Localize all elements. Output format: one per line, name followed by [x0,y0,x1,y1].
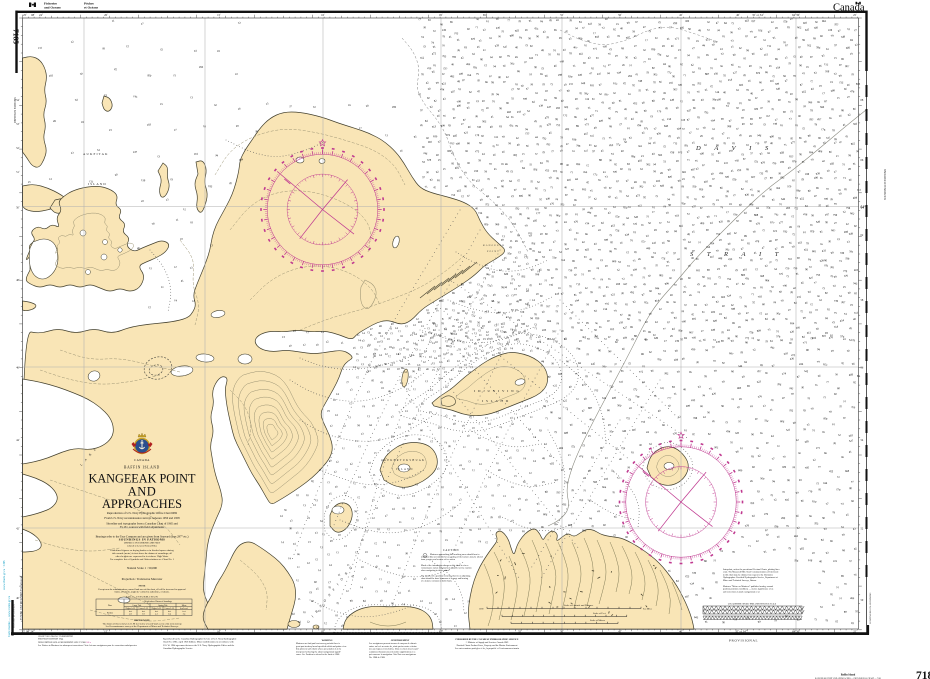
svg-text:309: 309 [754,108,759,111]
svg-text:659: 659 [582,432,587,435]
svg-text:190: 190 [474,170,479,173]
svg-text:545: 545 [634,216,639,219]
svg-text:Projection : Transverse Mercat: Projection : Transverse Mercator [122,577,163,581]
svg-text:788: 788 [693,417,698,420]
svg-text:Higher h.W.: Higher h.W. [126,607,136,610]
svg-text:Except near the administratio: Except near the administrations, named l… [98,588,186,591]
svg-text:10ʹ: 10ʹ [217,629,221,633]
svg-text:655: 655 [610,328,615,331]
svg-text:531: 531 [660,387,665,390]
svg-text:50ʹ: 50ʹ [618,13,622,17]
svg-text:489: 489 [565,128,570,131]
svg-text:362: 362 [582,336,587,339]
svg-text:53ʹ: 53ʹ [16,123,20,126]
svg-text:354: 354 [706,246,711,249]
svg-text:214: 214 [667,118,672,121]
svg-text:I D J U N I V I N G: I D J U N I V I N G [474,389,520,393]
svg-text:48ʹ: 48ʹ [16,279,20,282]
svg-text:25ʹ: 25ʹ [853,629,857,633]
svg-text:247: 247 [133,151,138,154]
svg-text:www.charts.gc.ca · CHS: www.charts.gc.ca · CHS [2,560,6,590]
svg-text:limits, of islands, might be v: limits, of islands, might be verified in… [115,591,170,594]
svg-text:TIDAL INFORMATION: TIDAL INFORMATION [126,595,158,598]
svg-text:Interpolate, unless the provis: Interpolate, unless the provisional Deci… [723,568,780,571]
svg-text:499: 499 [780,161,785,164]
svg-text:713: 713 [576,283,581,286]
svg-text:Spring Tide: Spring Tide [158,604,168,607]
svg-text:711: 711 [767,45,772,48]
svg-text:I S L A N D: I S L A N D [482,399,509,403]
svg-text:350: 350 [750,502,755,505]
svg-text:868: 868 [754,214,759,217]
svg-text:64°30ʹ: 64°30ʹ [792,13,800,17]
svg-text:865: 865 [822,20,827,23]
svg-text:64°30ʹ: 64°30ʹ [792,629,800,633]
svg-text:No. 1968 de 1968.: No. 1968 de 1968. [369,657,386,659]
svg-text:753: 753 [556,124,561,127]
svg-text:694: 694 [547,320,552,323]
svg-text:55ʹ: 55ʹ [560,13,564,17]
svg-text:NEW EDITION APR 4 1969 REPR: NEW EDITION APR 4 1969 REPRINT APR 27 19… [38,641,91,644]
svg-text:486: 486 [466,63,471,66]
svg-text:634: 634 [529,57,534,60]
svg-text:Mean: Mean [182,605,187,607]
svg-text:and corrections is made na: and corrections is made navigational or … [723,590,760,593]
svg-text:mind that this uncontrolled ar: mind that this uncontrolled area existin… [421,556,484,559]
svg-text:246: 246 [442,29,447,32]
svg-text:WARNING: WARNING [322,639,333,642]
svg-text:664: 664 [602,486,607,489]
svg-text:Much of the information shown: Much of the information shown on this ch… [421,564,469,567]
svg-text:772: 772 [745,337,750,340]
svg-text:769: 769 [579,499,584,502]
svg-text:648: 648 [581,82,586,85]
svg-text:APPROACHES: APPROACHES [102,497,182,511]
svg-text:280: 280 [781,517,786,520]
svg-text:312: 312 [585,98,590,101]
svg-text:25ʹ: 25ʹ [23,13,27,17]
svg-text:© Minister of Supply and Servi: © Minister of Supply and Services Canada… [466,641,508,644]
svg-text:cance. See Position is offere: cance. See Position is offered to the li… [296,653,340,656]
svg-text:584: 584 [820,106,825,109]
svg-text:50ʹ: 50ʹ [560,629,564,633]
svg-text:Height above Datum of Sounding: Height above Datum of Soundings [144,600,172,603]
svg-text:Mines and Technical Surveys, O: Mines and Technical Surveys, Ottawa. [723,580,757,582]
svg-text:447: 447 [547,106,552,109]
svg-text:ISLAND: ISLAND [88,182,107,186]
svg-text:875: 875 [553,170,558,173]
svg-text:K E K E R T U K S H U A K: K E K E R T U K S H U A K [384,459,424,462]
svg-text:of a feature common to both ch: of a feature common to both charts. [421,580,453,583]
svg-text:SOUNDINGS IN FATHOMS: SOUNDINGS IN FATHOMS [884,169,887,200]
svg-text:0.2: 0.2 [142,613,145,615]
svg-text:523: 523 [615,505,620,508]
svg-text:873: 873 [446,134,451,137]
svg-text:chart should be done by mea: chart should be done by means of a range… [421,577,469,580]
svg-text:299: 299 [673,22,678,25]
svg-text:752: 752 [716,233,721,236]
svg-text:223: 223 [542,329,547,332]
svg-text:position positions conditions: position positions conditions — metres s… [723,588,773,591]
svg-text:interpreted at having the: interpreted at having the about navigati… [296,650,341,653]
svg-text:K A N G E E A K: K A N G E E A K [483,244,504,247]
svg-text:545: 545 [781,198,786,201]
svg-text:44ʹ: 44ʹ [16,439,20,442]
svg-text:578: 578 [427,159,432,162]
svg-text:293: 293 [628,75,633,78]
svg-text:Lower L.W.: Lower L.W. [139,608,149,610]
svg-text:896: 896 [576,163,581,166]
svg-text:430: 430 [728,258,733,261]
svg-text:I S L A N D: I S L A N D [396,468,413,471]
svg-text:422: 422 [829,470,834,473]
svg-text:721: 721 [626,417,631,420]
svg-text:750: 750 [833,214,838,217]
svg-text:496: 496 [719,172,724,175]
svg-text:Baffin Island: Baffin Island [841,674,856,677]
svg-text:46ʹ: 46ʹ [16,367,20,370]
svg-text:745: 745 [477,126,482,129]
svg-text:284: 284 [199,66,204,69]
svg-text:55ʹ: 55ʹ [518,629,522,633]
svg-text:779: 779 [843,270,848,273]
svg-text:mes au risques et intervalles.: mes au risques et intervalles. Dans ces … [369,648,419,651]
svg-text:Les Notices to Mariners for su: Les Notices to Mariners for subsequent c… [38,644,137,647]
svg-text:203: 203 [786,207,791,210]
svg-text:and Oceans: and Oceans [44,5,62,9]
svg-text:45ʹ: 45ʹ [679,13,683,17]
svg-text:Mariners are find part lea: Mariners are find part least survey peri… [296,642,340,645]
svg-text:724: 724 [621,447,626,450]
svg-text:785: 785 [452,56,457,59]
svg-text:great part territory broad: great part territory broad specified whi… [296,645,347,648]
svg-text:Reproduced by the Canadian: Reproduced by the Canadian Hydrographic … [163,638,236,641]
svg-text:493: 493 [556,107,561,110]
svg-text:595: 595 [593,481,598,484]
svg-text:Scale of Metres: Scale of Metres [590,619,605,622]
svg-text:542: 542 [804,370,809,373]
svg-text:64°: 64° [861,206,867,210]
svg-text:CAUTION: CAUTION [443,549,459,552]
svg-text:620: 620 [504,273,509,276]
svg-text:reduced to Lowest Normal Tides: reduced to Lowest Normal Tides [127,545,157,547]
svg-text:Canadian Hydrographic Servic: Canadian Hydrographic Service. [163,647,193,650]
svg-text:Chart No. 5982, April 1958: Chart No. 5982, April 1958 Edition. Mino… [163,641,234,644]
svg-text:KANGEEAK POINT: KANGEEAK POINT [89,472,196,486]
svg-text:561: 561 [638,145,643,148]
svg-text:50ʹ: 50ʹ [16,207,20,210]
svg-text:260: 260 [609,144,614,147]
svg-text:178: 178 [475,134,480,137]
svg-text:486: 486 [850,597,855,600]
svg-text:et Océans: et Océans [84,5,99,9]
svg-text:334: 334 [823,482,828,485]
svg-text:546: 546 [738,365,743,368]
svg-text:250: 250 [737,169,742,172]
svg-text:qui concerne la navigation. Vo: qui concerne la navigation. Voir Note au… [369,653,416,656]
svg-text:Hydrographer. Provided Hydrog: Hydrographer. Provided Hydrographic Serv… [723,576,778,579]
svg-text:231: 231 [569,83,574,86]
svg-text:when navigating in these water: when navigating in these waters. [421,569,450,572]
svg-text:AUKPITAK: AUKPITAK [83,152,109,156]
svg-text:42ʹ: 42ʹ [16,528,20,531]
svg-text:LOGARITHMIC SPEED, TIME AND DI: LOGARITHMIC SPEED, TIME AND DISTANCE SCA… [728,603,777,606]
svg-text:759: 759 [451,194,456,197]
svg-text:Scale of Latitude and Distance: Scale of Latitude and Distance [564,604,593,607]
svg-text:309: 309 [685,20,690,23]
svg-text:649: 649 [654,337,659,340]
svg-text:35,131, sources with field adj: 35,131, sources with field adjustments [120,525,165,529]
svg-text:0.4: 0.4 [168,613,171,615]
svg-text:suivre au levé au cartes de, a: suivre au levé au cartes de, ainsi que/o… [369,645,417,648]
svg-text:533: 533 [602,397,607,400]
svg-text:431: 431 [724,162,729,165]
svg-text:from year to year because of i: from year to year because of ice action [421,558,456,561]
svg-text:54ʹ: 54ʹ [16,99,20,102]
svg-text:20ʹ: 20ʹ [104,13,108,17]
svg-text:2.4: 2.4 [183,613,186,615]
svg-text:Large Tide: Large Tide [133,604,142,607]
svg-text:507: 507 [554,479,559,482]
svg-text:753: 753 [727,278,732,281]
svg-text:4.6: 4.6 [129,613,132,615]
svg-text:402: 402 [559,447,564,450]
svg-text:689: 689 [568,524,573,527]
svg-text:U.S. W. 1964 agreement bet: U.S. W. 1964 agreement between the U.S. … [163,644,234,647]
svg-text:08ʹ: 08ʹ [31,13,35,17]
svg-text:349: 349 [622,430,627,433]
svg-text:368: 368 [760,275,765,278]
svg-text:362: 362 [776,187,781,190]
svg-text:337: 337 [751,20,756,23]
svg-text:Lower L.W.: Lower L.W. [165,608,175,610]
svg-text:315: 315 [494,136,499,139]
svg-text:643: 643 [664,125,669,128]
svg-text:For complete list of Symbols a: For complete list of Symbols and Abbrevi… [110,558,175,561]
svg-text:729: 729 [692,572,697,575]
svg-text:724: 724 [520,311,525,314]
svg-text:Higher h.W.: Higher h.W. [152,607,162,610]
svg-text:463: 463 [737,387,742,390]
svg-text:584: 584 [658,154,663,157]
svg-text:UNDER 11 IN FATHOMS AND FEET: UNDER 11 IN FATHOMS AND FEET [124,542,161,545]
svg-text:AVERTISSEMENT: AVERTISSEMENT [391,639,410,642]
svg-text:318: 318 [681,119,686,122]
svg-text:TOWER ON THICKNESS The canvas: TOWER ON THICKNESS The canvas off [20,575,23,620]
svg-text:PRINTED IN CANADA: PRINTED IN CANADA [13,604,16,628]
svg-text:P O I N T: P O I N T [487,250,499,253]
svg-text:BAFFIN ISLAND: BAFFIN ISLAND [124,466,160,470]
svg-text:739: 739 [834,300,839,303]
svg-text:403: 403 [418,321,423,324]
svg-text:659: 659 [558,373,563,376]
svg-text:755: 755 [816,274,821,277]
svg-text:7185: 7185 [916,670,930,679]
svg-text:D A V I S: D A V I S [695,145,774,152]
svg-text:sentations d'annoncement la mé: sentations d'annoncement la météo signif… [369,650,416,653]
svg-text:673: 673 [773,230,778,233]
svg-text:514: 514 [715,91,720,94]
svg-text:271: 271 [816,447,821,450]
svg-text:Mariners approaching this beac: Mariners approaching this beaching areas… [430,553,480,556]
svg-text:Les cartes marines protégées e: Les cartes marines protégées et les, la … [455,647,520,650]
svg-text:SOUNDINGS IN FATHOMS: SOUNDINGS IN FATHOMS [119,538,166,542]
svg-text:PROVISIONAL: PROVISIONAL [729,639,758,643]
svg-text:827: 827 [751,176,756,179]
svg-text:460: 460 [507,111,512,114]
svg-text:228: 228 [828,29,833,32]
svg-text:in this chart may be obtain: in this chart may be obtained on request… [723,573,774,576]
svg-text:221: 221 [833,560,838,563]
svg-text:See Reconnaissance survey of t: See Reconnaissance survey of the Departm… [106,625,179,628]
svg-text:05ʹ: 05ʹ [439,13,443,17]
svg-text:NOTE: NOTE [139,585,146,588]
svg-text:40ʹ: 40ʹ [16,597,20,600]
svg-text:Scale of Feet: Scale of Feet [593,612,606,615]
svg-text:PREVIOUS EDITION 1944: PREVIOUS EDITION 1944 [38,639,64,641]
svg-text:35ʹ or 34ʺ: 35ʹ or 34ʺ [735,629,748,633]
svg-text:25ʹ: 25ʹ [853,13,857,17]
svg-text:736: 736 [478,212,483,215]
svg-text:Sea Miles: Sea Miles [643,609,652,611]
svg-text:279: 279 [764,513,769,516]
svg-text:CHART 7185 LORAN-C OVERPRINT: CHART 7185 LORAN-C OVERPRINTED [38,635,73,638]
svg-text:356: 356 [583,171,588,174]
svg-text:226: 226 [799,363,804,366]
svg-text:403: 403 [854,269,859,272]
svg-text:672: 672 [756,72,761,75]
svg-text:676: 676 [537,341,542,344]
svg-text:320: 320 [735,432,740,435]
svg-text:867: 867 [705,73,710,76]
svg-text:214: 214 [603,308,608,311]
svg-text:681: 681 [682,171,687,174]
svg-text:243: 243 [691,399,696,402]
svg-text:177: 177 [536,212,541,215]
svg-text:45ʹ: 45ʹ [618,629,622,633]
svg-text:668: 668 [845,470,850,473]
svg-text:51ʹ: 51ʹ [16,171,20,174]
svg-text:720: 720 [840,252,845,255]
svg-text:PUBLISHED BY THE CANADIAN HYDR: PUBLISHED BY THE CANADIAN HYDROGRAPHIC S… [456,638,519,641]
svg-text:462: 462 [794,535,799,538]
svg-text:40ʹ: 40ʹ [736,13,740,17]
svg-text:357: 357 [766,115,771,118]
svg-text:354: 354 [467,74,472,77]
svg-text:527: 527 [565,248,570,251]
svg-text:604: 604 [721,296,726,299]
svg-text:Mariners “Metres or Mariners”: Mariners “Metres or Mariners” published … [723,585,773,588]
svg-text:687: 687 [588,407,593,410]
svg-text:Reproduction of U.S. Navy Hydr: Reproduction of U.S. Navy Hydrographic O… [107,511,178,515]
svg-text:scale. The Measured Mile Cha: scale. The Measured Mile Chart Communica… [723,571,779,574]
svg-text:551: 551 [788,258,793,261]
svg-text:188: 188 [805,173,810,176]
svg-text:Sea Level: Sea Level [180,608,188,610]
svg-text:347: 347 [623,283,628,286]
svg-text:756: 756 [846,207,851,210]
svg-text:The datum of this is shown is: The datum of this is shown is 11.98 feet… [102,622,182,625]
svg-text:15ʹ: 15ʹ [104,629,108,633]
svg-text:748: 748 [638,80,643,83]
svg-text:286: 286 [392,106,397,109]
svg-text:The transfer of a position fro: The transfer of a position from this cha… [421,575,471,578]
svg-text:05ʹ: 05ʹ [321,629,325,633]
svg-text:309: 309 [782,466,787,469]
svg-text:Place: Place [108,605,112,607]
svg-text:552: 552 [561,259,566,262]
svg-text:10ʹ: 10ʹ [321,13,325,17]
svg-text:Kivitoo: Kivitoo [107,612,113,614]
svg-text:S T R A I T: S T R A I T [690,251,784,258]
svg-text:15ʹ: 15ʹ [217,13,221,17]
svg-text:Nautical Charts Product Lines,: Nautical Charts Product Lines, Property … [457,645,518,647]
svg-text:35ʹ or 34ʺ: 35ʹ or 34ʺ [752,13,765,17]
svg-text:CONTINUED ON ADJOINING: CONTINUED ON ADJOINING [869,592,872,624]
svg-text:509: 509 [564,106,569,109]
svg-text:406: 406 [711,311,716,314]
svg-text:382: 382 [513,154,518,157]
svg-text:DEPTH NOTE: DEPTH NOTE [134,619,150,622]
svg-text:52ʹ: 52ʹ [16,147,20,150]
svg-text:this prints in such charts: this prints in such charts where present… [296,649,341,651]
svg-text:Carte marine — www.cartes.gc.c: Carte marine — www.cartes.gc.ca [7,595,11,637]
svg-text:Les navigateurs peuvent trouve: Les navigateurs peuvent trouver de moyen… [369,642,417,645]
svg-text:4.1: 4.1 [155,613,158,615]
svg-text:468: 468 [616,283,621,286]
svg-text:25ʹ 08ʹ 24ʺ: 25ʹ 08ʹ 24ʺ [22,629,36,633]
svg-text:CANADA: CANADA [134,458,150,462]
svg-text:From U.S. Navy reconnaissance: From U.S. Navy reconnaissance surveys be… [104,516,180,520]
svg-text:40ʹ: 40ʹ [679,629,683,633]
